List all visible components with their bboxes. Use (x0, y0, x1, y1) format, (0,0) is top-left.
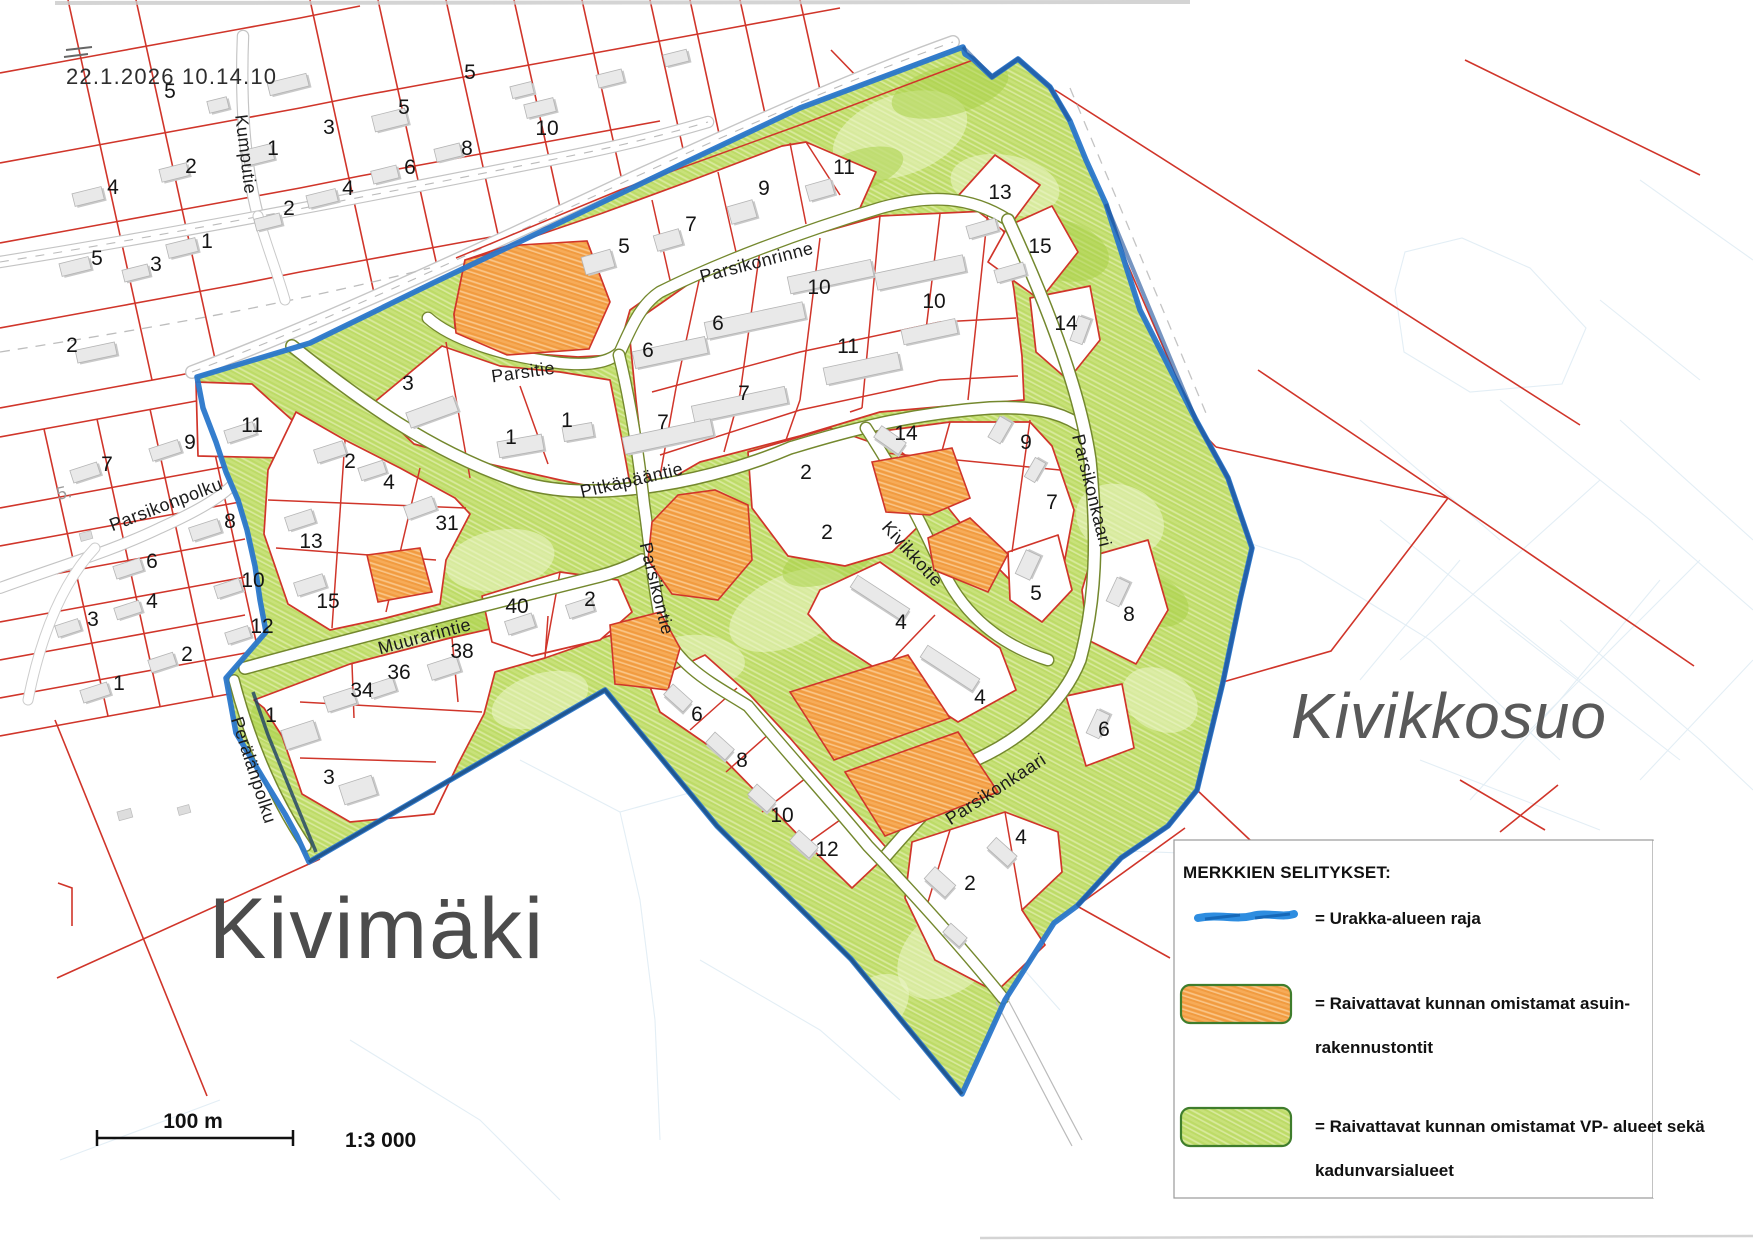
svg-text:2: 2 (964, 872, 976, 895)
svg-text:5: 5 (464, 61, 476, 84)
svg-text:1: 1 (201, 230, 213, 253)
svg-text:11: 11 (241, 414, 263, 437)
svg-text:10: 10 (770, 804, 793, 827)
svg-text:6: 6 (691, 703, 703, 726)
svg-text:1: 1 (265, 704, 277, 727)
svg-text:15: 15 (1028, 235, 1051, 258)
svg-text:8: 8 (461, 137, 473, 160)
svg-text:MERKKIEN SELITYKSET:: MERKKIEN SELITYKSET: (1183, 863, 1391, 882)
svg-text:13: 13 (988, 181, 1011, 204)
svg-text:6: 6 (404, 156, 416, 179)
svg-text:2: 2 (185, 155, 197, 178)
svg-text:kadunvarsialueet: kadunvarsialueet (1315, 1161, 1454, 1180)
svg-text:2: 2 (584, 588, 596, 611)
svg-text:3: 3 (402, 372, 414, 395)
svg-text:6: 6 (642, 339, 654, 362)
svg-text:7: 7 (685, 213, 697, 236)
svg-text:6: 6 (712, 312, 724, 335)
svg-text:Kivimäki: Kivimäki (209, 881, 545, 977)
svg-text:6: 6 (146, 550, 158, 573)
svg-text:9: 9 (1020, 431, 1032, 454)
svg-text:8: 8 (1123, 603, 1135, 626)
svg-text:34: 34 (350, 679, 374, 702)
svg-text:1:3 000: 1:3 000 (345, 1129, 416, 1152)
svg-text:5: 5 (618, 235, 630, 258)
svg-text:7: 7 (738, 382, 750, 405)
svg-text:2: 2 (283, 197, 295, 220)
svg-text:5: 5 (91, 247, 103, 270)
svg-text:7: 7 (101, 453, 113, 476)
svg-text:4: 4 (342, 177, 354, 200)
svg-text:7: 7 (1046, 491, 1058, 514)
svg-text:11: 11 (837, 335, 859, 358)
svg-text:10: 10 (535, 117, 558, 140)
svg-text:8: 8 (736, 749, 748, 772)
svg-text:1: 1 (505, 426, 517, 449)
svg-text:4: 4 (1015, 826, 1027, 849)
svg-text:4: 4 (146, 590, 158, 613)
svg-text:rakennustontit: rakennustontit (1315, 1038, 1433, 1057)
svg-text:1: 1 (561, 409, 573, 432)
svg-text:3: 3 (323, 116, 335, 139)
svg-text:40: 40 (505, 595, 528, 618)
svg-text:2: 2 (821, 521, 833, 544)
svg-text:10: 10 (807, 276, 830, 299)
svg-text:= Urakka-alueen raja: = Urakka-alueen raja (1315, 909, 1481, 928)
svg-text:5: 5 (398, 96, 410, 119)
svg-text:9: 9 (758, 177, 770, 200)
svg-text:2: 2 (66, 334, 78, 357)
svg-text:2: 2 (800, 461, 812, 484)
svg-text:11: 11 (833, 156, 855, 179)
svg-text:2: 2 (181, 643, 193, 666)
svg-text:9: 9 (184, 431, 196, 454)
svg-text:3: 3 (87, 608, 99, 631)
svg-text:5: 5 (1030, 582, 1042, 605)
svg-text:7: 7 (657, 411, 669, 434)
svg-text:2: 2 (344, 450, 356, 473)
svg-text:10: 10 (922, 290, 945, 313)
svg-text:1: 1 (113, 672, 125, 695)
svg-text:22.1.2026 10.14.10: 22.1.2026 10.14.10 (66, 64, 277, 89)
svg-text:14: 14 (894, 422, 918, 445)
svg-text:12: 12 (815, 838, 838, 861)
svg-text:8: 8 (224, 510, 236, 533)
svg-text:3: 3 (323, 766, 335, 789)
svg-text:4: 4 (383, 471, 395, 494)
svg-text:= Raivattavat kunnan omistamat: = Raivattavat kunnan omistamat VP- aluee… (1315, 1117, 1705, 1136)
svg-text:12: 12 (250, 615, 273, 638)
svg-text:4: 4 (974, 686, 986, 709)
svg-text:= Raivattavat kunnan omistamat: = Raivattavat kunnan omistamat asuin- (1315, 994, 1630, 1013)
svg-text:1: 1 (267, 137, 279, 160)
svg-text:31: 31 (435, 512, 458, 535)
svg-text:36: 36 (387, 661, 410, 684)
svg-text:6: 6 (1098, 718, 1110, 741)
svg-text:14: 14 (1054, 312, 1078, 335)
svg-text:15: 15 (316, 590, 339, 613)
svg-text:13: 13 (299, 530, 322, 553)
svg-text:3: 3 (150, 253, 162, 276)
svg-text:38: 38 (450, 640, 473, 663)
svg-text:100 m: 100 m (163, 1110, 223, 1133)
svg-text:Kivikkosuo: Kivikkosuo (1291, 680, 1607, 752)
svg-text:4: 4 (107, 176, 119, 199)
svg-text:4: 4 (895, 611, 907, 634)
svg-text:10: 10 (241, 569, 264, 592)
